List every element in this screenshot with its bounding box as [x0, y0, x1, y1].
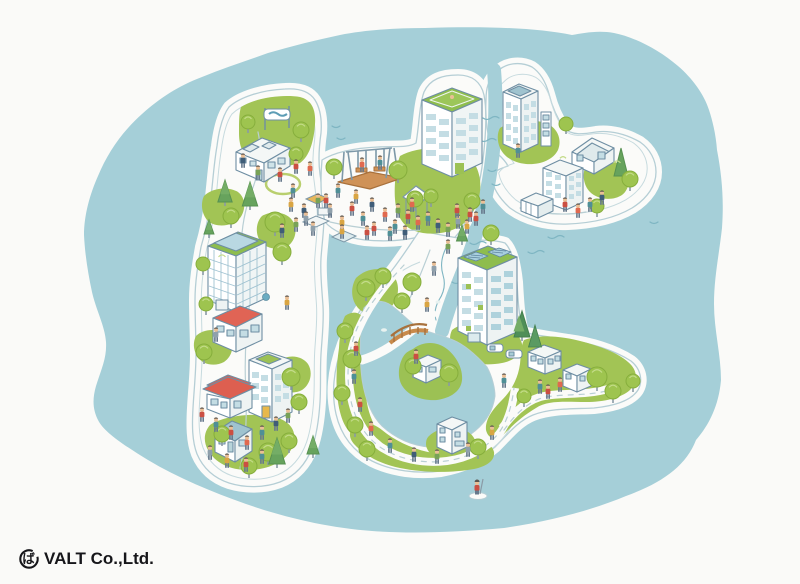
svg-text:ば: ば: [22, 551, 35, 566]
